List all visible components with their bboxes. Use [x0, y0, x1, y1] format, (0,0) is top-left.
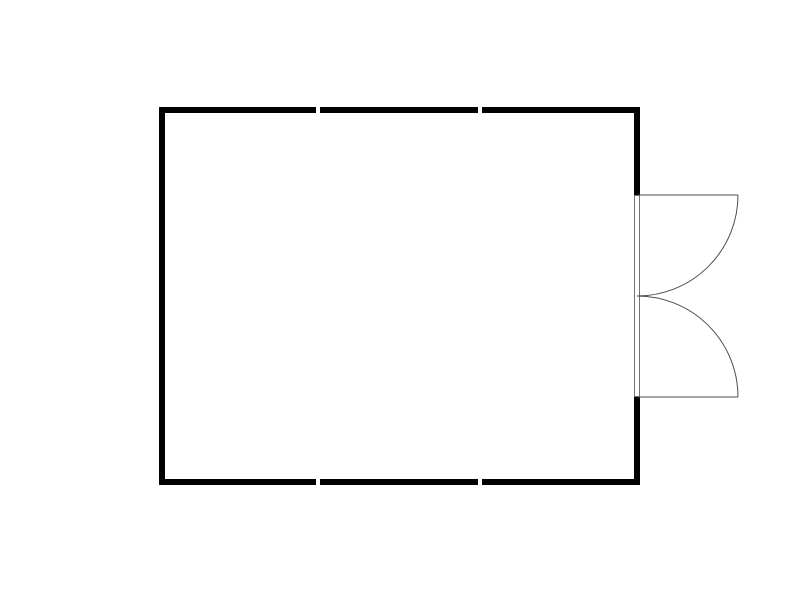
wall-top-middle-segment	[320, 107, 478, 113]
wall-top-right-segment	[482, 107, 640, 113]
wall-top-left-segment	[159, 107, 316, 113]
wall-right-upper	[634, 107, 640, 195]
wall-bottom-middle-segment	[320, 479, 478, 485]
wall-left	[159, 107, 165, 485]
wall-bottom-left-segment	[159, 479, 316, 485]
floor-plan-stage	[0, 0, 800, 600]
wall-right-lower	[634, 397, 640, 485]
door-leaf-top-swing-arc	[637, 195, 738, 296]
floor-plan	[0, 0, 800, 600]
wall-bottom-right-segment	[482, 479, 640, 485]
door-leaf-bottom-swing-arc	[637, 296, 738, 397]
